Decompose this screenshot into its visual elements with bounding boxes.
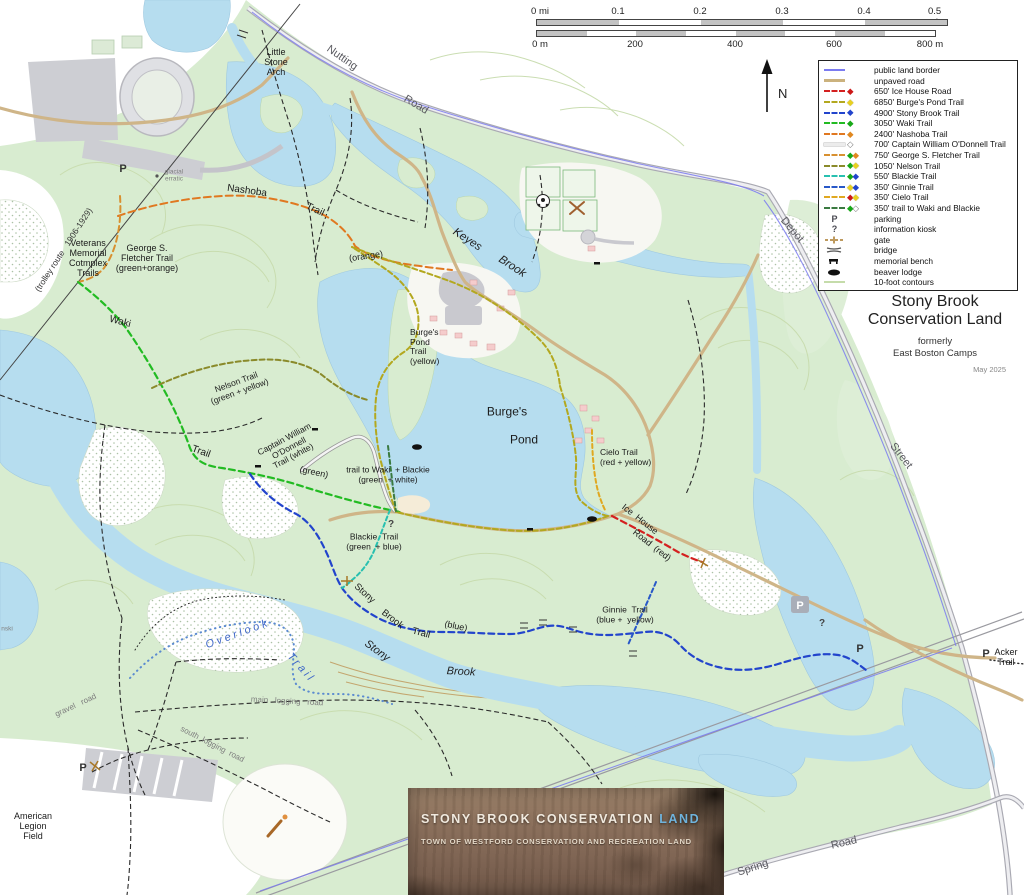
orange-blaze-icon: ◆	[847, 130, 853, 139]
gate-icon	[824, 236, 845, 244]
legend-item: ◆◆1050' Nelson Trail	[824, 160, 1012, 171]
legend-item: bridge	[824, 245, 1012, 256]
trail-map-page: P P P P P ? ? Little Stone Arch Nutting …	[0, 0, 1024, 895]
legend-item: unpaved road	[824, 76, 1012, 87]
bridge-icon	[824, 246, 845, 254]
legend-item: memorial bench	[824, 256, 1012, 267]
scale-meter-label: 600	[826, 39, 842, 50]
map-date: May 2025	[973, 365, 1006, 374]
map-subtitle-formerly: formerly	[918, 336, 952, 347]
legend-item: ◆6850' Burge's Pond Trail	[824, 97, 1012, 108]
legend-item: public land border	[824, 65, 1012, 76]
parking-icon: P	[982, 648, 989, 660]
title-block: Stony Brook Conservation Land formerly E…	[842, 293, 1024, 360]
legend-item: ?information kiosk	[824, 224, 1012, 235]
blue-blaze-icon: ◆	[847, 108, 853, 117]
information-kiosk-icon: ?	[388, 519, 394, 530]
scale-mile-label: 0.4	[857, 6, 870, 17]
scale-meter-label: 200	[627, 39, 643, 50]
scale-mile-label: 0 mi	[531, 6, 549, 17]
miles-scale-bar	[536, 19, 948, 26]
scale-bars: 0 mi 0.1 0.2 0.3 0.4 0.5 mi 0 m 200 400 …	[528, 4, 964, 56]
sign-title: STONY BROOK CONSERVATION LAND	[421, 812, 700, 826]
sign-photo: STONY BROOK CONSERVATION LAND TOWN OF WE…	[408, 788, 724, 895]
legend-item: ◆◆350' Ginnie Trail	[824, 182, 1012, 193]
map-legend: public land border unpaved road ◆650' Ic…	[818, 60, 1018, 291]
parking-icon: P	[79, 762, 86, 774]
legend-item: Pparking	[824, 213, 1012, 224]
legend-item: 10-foot contours	[824, 277, 1012, 288]
yellow-blaze-icon: ◆	[853, 161, 859, 170]
red-blaze-icon: ◆	[847, 87, 853, 96]
scale-meter-label: 800 m	[917, 39, 943, 50]
legend-item: ◆◆350' Cielo Trail	[824, 192, 1012, 203]
blue-blaze-icon: ◆	[853, 183, 859, 192]
legend-item: beaver lodge	[824, 266, 1012, 277]
soccer-ball-icon	[537, 195, 550, 208]
map-title-line1: Stony Brook	[891, 293, 978, 310]
scale-mile-label: 0.1	[611, 6, 624, 17]
information-kiosk-icon: ?	[824, 224, 845, 234]
parking-icon: P	[856, 643, 863, 655]
blue-blaze-icon: ◆	[853, 172, 859, 181]
scale-meter-label: 0 m	[532, 39, 548, 50]
legend-item: gate	[824, 235, 1012, 246]
legend-item: ◆◆750' George S. Fletcher Trail	[824, 150, 1012, 161]
white-blaze-icon: ◇	[853, 204, 859, 213]
meters-scale-bar	[536, 30, 936, 37]
legend-item: ◆◇350' trail to Waki and Blackie	[824, 203, 1012, 214]
map-subtitle-east-boston: East Boston Camps	[893, 348, 977, 359]
memorial-bench-icon	[824, 257, 845, 265]
scale-mile-label: 0.3	[775, 6, 788, 17]
scale-mile-label: 0.2	[693, 6, 706, 17]
glacial-erratic-marker	[155, 174, 158, 177]
information-kiosk-icon: ?	[819, 618, 825, 629]
parking-icon: P	[796, 600, 803, 612]
baseball-icon	[283, 815, 288, 820]
legend-item: ◆4900' Stony Brook Trail	[824, 107, 1012, 118]
yellow-blaze-icon: ◆	[847, 98, 853, 107]
legend-item: ◆◆550' Blackie Trail	[824, 171, 1012, 182]
legend-item: ◆2400' Nashoba Trail	[824, 129, 1012, 140]
north-arrow-icon	[752, 56, 796, 118]
map-title-line2: Conservation Land	[868, 311, 1002, 328]
parking-icon: P	[824, 214, 845, 224]
scale-meter-label: 400	[727, 39, 743, 50]
legend-item: ◇700' Captain William O'Donnell Trail	[824, 139, 1012, 150]
sign-title-land: LAND	[659, 812, 700, 826]
beaver-lodge-icon	[824, 268, 845, 276]
orange-blaze-icon: ◆	[853, 151, 859, 160]
legend-item: ◆650' Ice House Road	[824, 86, 1012, 97]
sign-subtitle: TOWN OF WESTFORD CONSERVATION AND RECREA…	[421, 837, 692, 846]
white-blaze-icon: ◇	[847, 140, 853, 149]
north-label: N	[778, 86, 787, 101]
parking-icon: P	[119, 163, 126, 175]
green-blaze-icon: ◆	[847, 119, 853, 128]
north-arrow: N	[752, 56, 796, 118]
yellow-blaze-icon: ◆	[853, 193, 859, 202]
legend-item: ◆3050' Waki Trail	[824, 118, 1012, 129]
